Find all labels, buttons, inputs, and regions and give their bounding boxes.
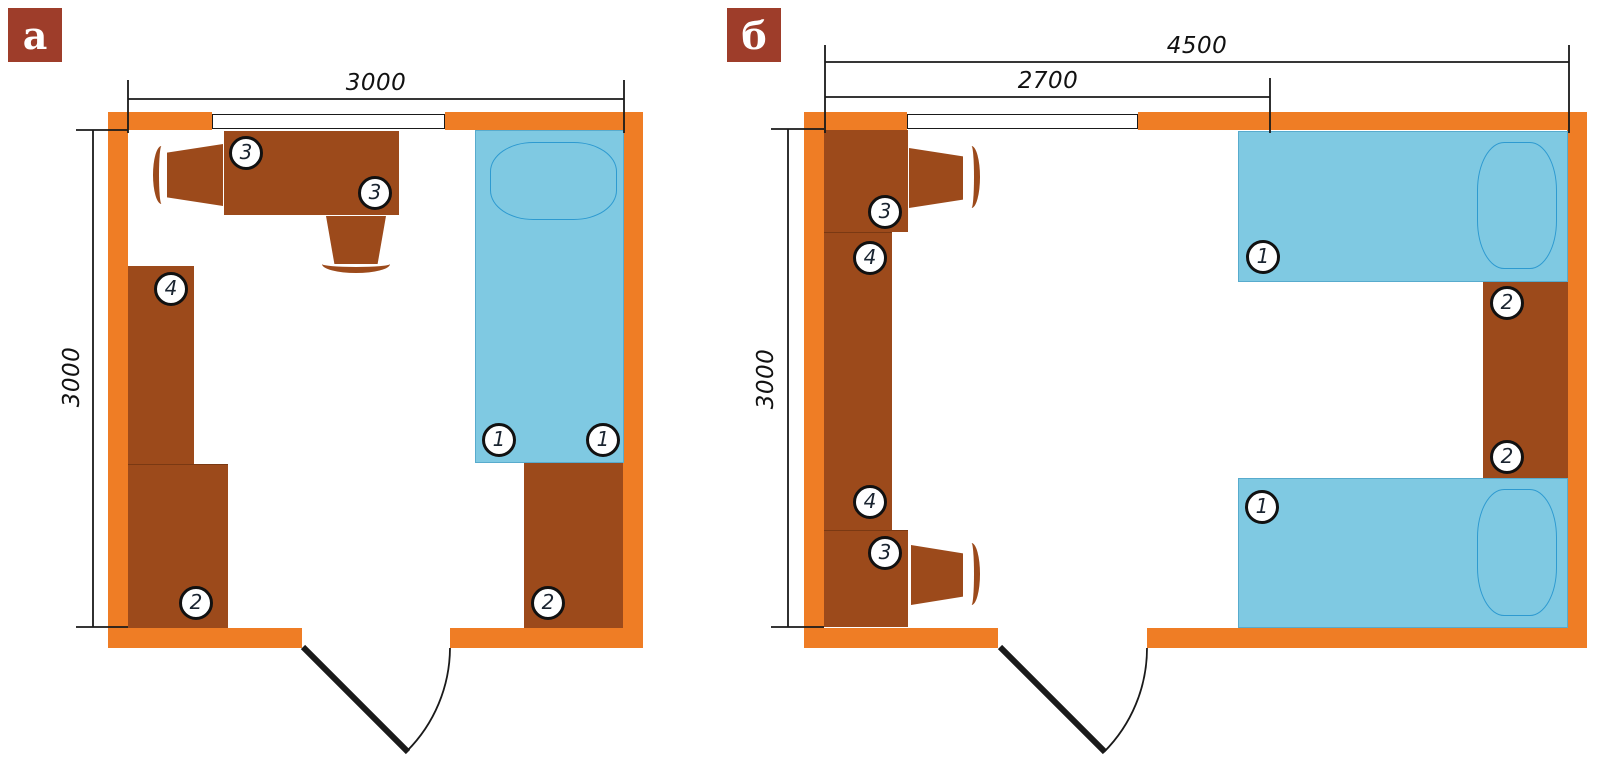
furniture-marker: 1 bbox=[1246, 240, 1280, 274]
furniture-marker: 3 bbox=[868, 195, 902, 229]
furniture-marker: 3 bbox=[229, 136, 263, 170]
furniture-marker: 4 bbox=[853, 241, 887, 275]
furniture-marker: 3 bbox=[358, 176, 392, 210]
plan-b-door-leaf bbox=[1000, 647, 1105, 752]
furniture-marker: 1 bbox=[482, 423, 516, 457]
furniture-marker: 1 bbox=[586, 423, 620, 457]
furniture-marker: 3 bbox=[868, 536, 902, 570]
dimension-and-door-lines bbox=[0, 0, 1600, 758]
plan-a-height-dim: 3000 bbox=[59, 331, 85, 423]
furniture-marker: 1 bbox=[1245, 490, 1279, 524]
furniture-marker: 4 bbox=[853, 485, 887, 519]
plan-b-total-width-dim: 4500 bbox=[1151, 33, 1243, 59]
plan-a-width-dim: 3000 bbox=[330, 70, 422, 96]
plan-a-label: а bbox=[8, 8, 62, 62]
floor-plan-canvas: а б 3 3 4 2 1 1 2 3 4 4 3 1 2 2 1 bbox=[0, 0, 1600, 758]
furniture-marker: 2 bbox=[1490, 286, 1524, 320]
furniture-marker: 2 bbox=[1490, 440, 1524, 474]
furniture-marker: 2 bbox=[531, 586, 565, 620]
furniture-marker: 4 bbox=[154, 272, 188, 306]
plan-a-door-swing-arc bbox=[407, 648, 450, 751]
plan-a-door-leaf bbox=[303, 647, 408, 752]
plan-b-door-swing-arc bbox=[1104, 648, 1147, 752]
plan-b-label: б bbox=[727, 8, 781, 62]
plan-b-window-width-dim: 2700 bbox=[1002, 68, 1094, 94]
furniture-marker: 2 bbox=[179, 586, 213, 620]
plan-b-height-dim: 3000 bbox=[753, 333, 779, 425]
